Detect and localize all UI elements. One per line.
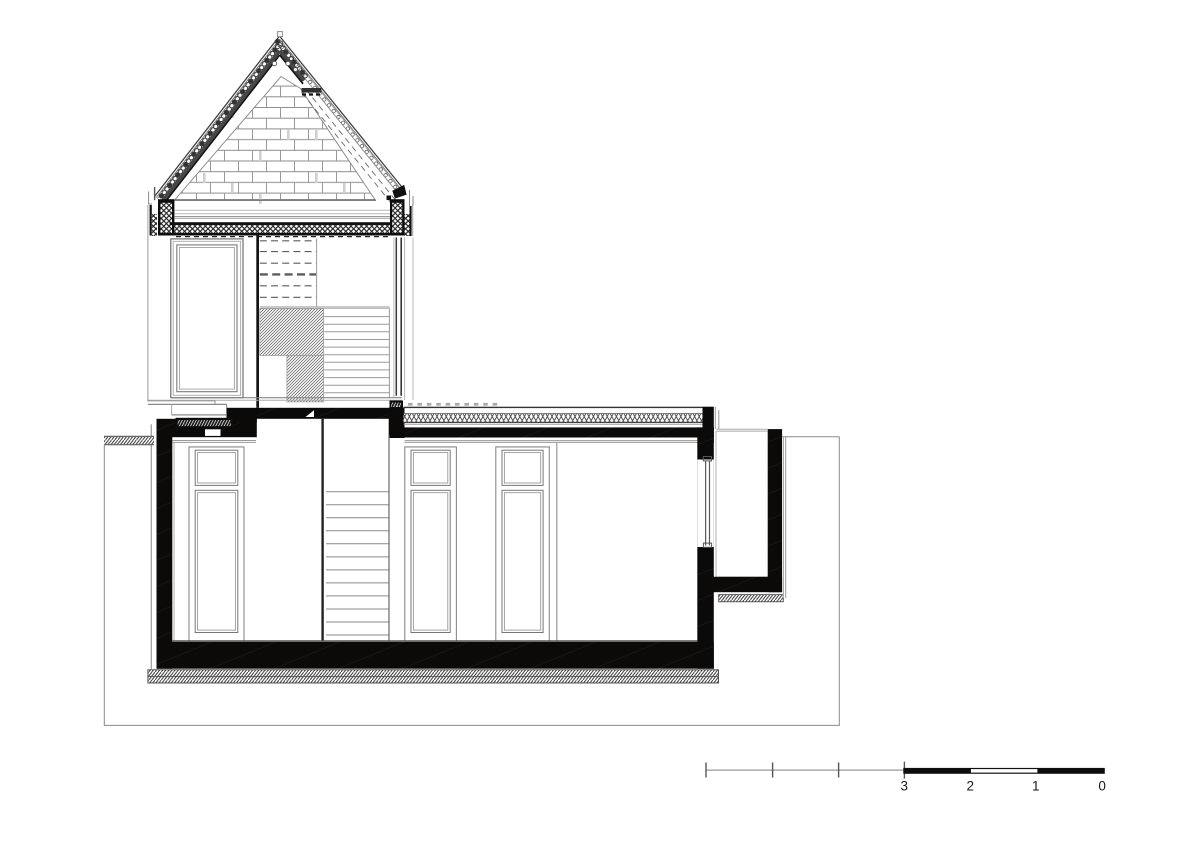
svg-text:2: 2 <box>966 779 974 794</box>
svg-text:1: 1 <box>1032 779 1040 794</box>
svg-text:3: 3 <box>901 779 909 794</box>
svg-text:0: 0 <box>1098 779 1106 794</box>
